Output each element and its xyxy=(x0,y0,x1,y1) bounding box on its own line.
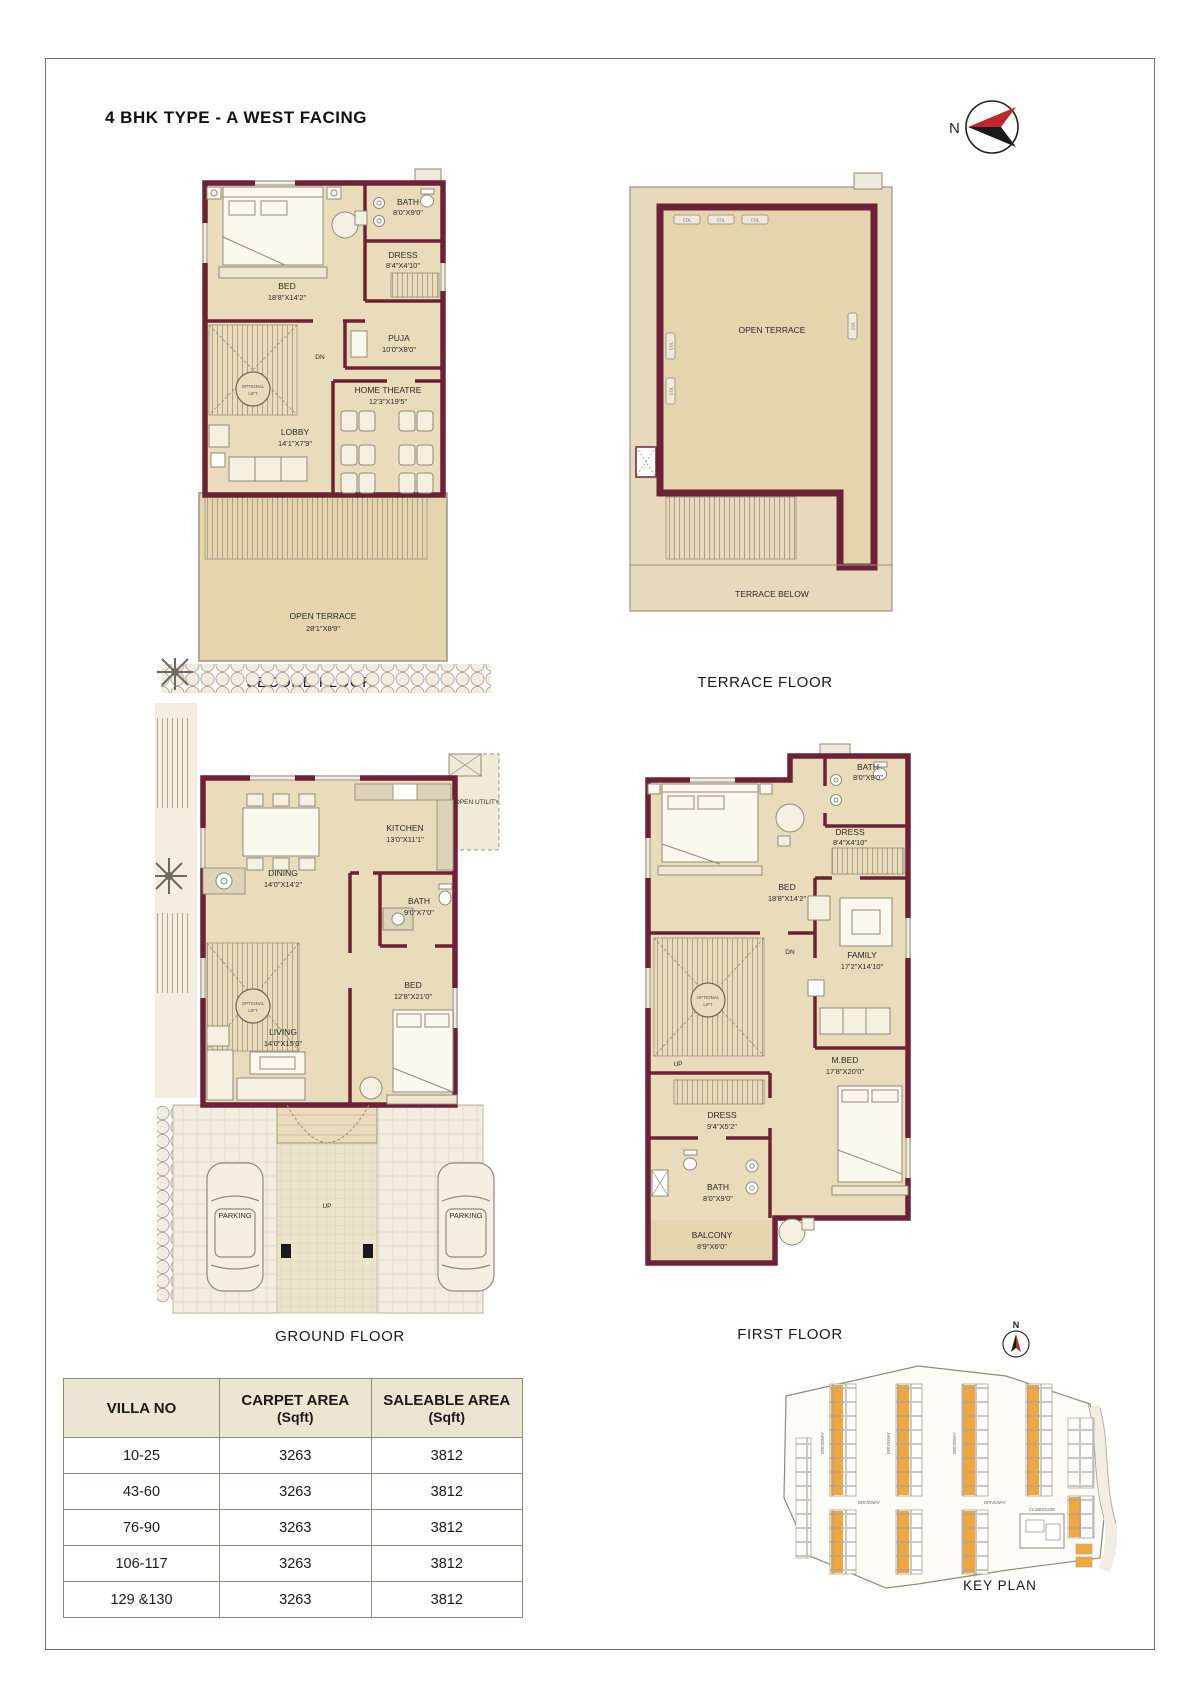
open-terrace-label: OPEN TERRACE xyxy=(739,325,806,335)
lift-label-1: OPTIONAL xyxy=(242,384,265,389)
stair-hatch xyxy=(666,497,796,559)
room-family: FAMILY xyxy=(847,950,877,960)
porch-steps xyxy=(277,1105,377,1143)
second-floor-plan: OPTIONAL LIFT DN BED 18'8"X14'2" BATH 8'… xyxy=(195,163,455,668)
svg-text:8'0"X9'0": 8'0"X9'0" xyxy=(853,773,883,782)
carpet-area-cell: 3263 xyxy=(220,1474,371,1510)
villa-no-cell: 106-117 xyxy=(64,1546,220,1582)
svg-text:N: N xyxy=(1013,1320,1020,1330)
wardrobe-icon xyxy=(832,848,904,874)
svg-text:LIFT: LIFT xyxy=(703,1002,713,1007)
dn-label: DN xyxy=(785,949,795,956)
lot-group xyxy=(830,1384,856,1496)
optional-lift: OPTIONAL LIFT xyxy=(236,372,270,406)
room-open-utility: OPEN UTILITY xyxy=(455,799,500,806)
room-bath-low: BATH xyxy=(707,1182,729,1192)
key-plan-caption: KEY PLAN xyxy=(963,1578,1037,1593)
col-saleable-area: SALEABLE AREA(Sqft) xyxy=(371,1379,522,1438)
dining-set-icon xyxy=(243,794,319,870)
svg-text:14'0"X14'2": 14'0"X14'2" xyxy=(264,880,303,889)
svg-text:18'8"X14'2": 18'8"X14'2" xyxy=(768,894,807,903)
wash-basin-icon xyxy=(203,868,245,894)
svg-text:17'2"X14'10": 17'2"X14'10" xyxy=(841,962,884,971)
key-plan: N xyxy=(768,1318,1118,1613)
svg-text:12'8"X21'0": 12'8"X21'0" xyxy=(394,992,433,1001)
bed-icon xyxy=(387,1010,457,1104)
roof-shaft xyxy=(854,173,882,189)
gate-post xyxy=(281,1244,291,1258)
villa-no-cell: 129 &130 xyxy=(64,1582,220,1618)
room-open-terrace: OPEN TERRACE xyxy=(290,611,357,621)
room-puja: PUJA xyxy=(388,333,410,343)
carpet-area-cell: 3263 xyxy=(220,1510,371,1546)
room-balcony: BALCONY xyxy=(692,1230,733,1240)
table-row: 129 &130 3263 3812 xyxy=(64,1582,523,1618)
page-title: 4 BHK TYPE - A WEST FACING xyxy=(105,108,367,128)
table-row: 43-60 3263 3812 xyxy=(64,1474,523,1510)
puja-shrine-icon xyxy=(351,331,367,357)
lot-group xyxy=(1026,1384,1052,1496)
compass-icon xyxy=(966,101,1018,153)
svg-text:8'4"X4'10": 8'4"X4'10" xyxy=(833,838,867,847)
open-terrace-area xyxy=(199,493,447,661)
lot-group xyxy=(962,1510,988,1574)
room-dress: DRESS xyxy=(388,250,418,260)
svg-text:DRIVEWAY: DRIVEWAY xyxy=(858,1500,880,1505)
svg-text:8'9"X6'0": 8'9"X6'0" xyxy=(697,1242,727,1251)
terrace-below-label: TERRACE BELOW xyxy=(735,589,809,599)
room-kitchen: KITCHEN xyxy=(386,823,423,833)
carpet-area-cell: 3263 xyxy=(220,1582,371,1618)
svg-text:9'0"X7'0": 9'0"X7'0" xyxy=(404,908,434,917)
col-label: COL xyxy=(669,341,674,350)
armchair-icon xyxy=(779,1218,814,1245)
svg-text:13'0"X11'1": 13'0"X11'1" xyxy=(386,835,424,844)
svg-text:LIFT: LIFT xyxy=(248,1008,258,1013)
balcony-floor xyxy=(651,1220,772,1260)
utility-shaft xyxy=(449,754,481,776)
terrace-floor-caption: TERRACE FLOOR xyxy=(615,674,915,691)
room-dress-mid: DRESS xyxy=(707,1110,737,1120)
col-label: COL xyxy=(683,218,692,223)
svg-text:8'0"X9'0": 8'0"X9'0" xyxy=(703,1194,733,1203)
north-compass: N xyxy=(935,92,1030,164)
lot-group xyxy=(830,1510,856,1574)
svg-text:18'8"X14'2": 18'8"X14'2" xyxy=(268,293,307,302)
wardrobe-icon xyxy=(674,1080,764,1104)
highlight-lot xyxy=(1076,1544,1092,1554)
svg-text:DRIVEWAY: DRIVEWAY xyxy=(984,1500,1006,1505)
car-icon xyxy=(438,1163,494,1291)
svg-text:8'4"X4'10": 8'4"X4'10" xyxy=(386,261,420,270)
brochure-page: { "page": { "title": "4 BHK TYPE - A WES… xyxy=(0,0,1200,1697)
svg-text:28'1"X8'9": 28'1"X8'9" xyxy=(306,624,340,633)
hedge-column xyxy=(157,1106,173,1302)
lift-label-2: LIFT xyxy=(248,391,258,396)
bed-icon xyxy=(648,784,772,875)
ground-floor-caption: GROUND FLOOR xyxy=(190,1328,490,1345)
room-lobby: LOBBY xyxy=(281,427,310,437)
svg-text:OPTIONAL: OPTIONAL xyxy=(242,1001,265,1006)
car-icon xyxy=(207,1163,263,1291)
north-label: N xyxy=(949,120,960,137)
garden-hatch xyxy=(155,718,191,808)
gate-post xyxy=(363,1244,373,1258)
highlight-lot xyxy=(1076,1557,1092,1567)
ground-floor-plan: OPTIONAL LIFT UP DINING 14'0"X14'2" KITC… xyxy=(155,658,500,1318)
col-villa-no: VILLA NO xyxy=(64,1379,220,1438)
saleable-area-cell: 3812 xyxy=(371,1510,522,1546)
clubhouse-label: CLUBHOUSE xyxy=(1029,1507,1055,1512)
room-bed: BED xyxy=(778,882,795,892)
room-bath-top: BATH xyxy=(857,762,879,772)
saleable-area-cell: 3812 xyxy=(371,1474,522,1510)
col-label: COL xyxy=(751,218,760,223)
room-dining: DINING xyxy=(268,868,298,878)
parking-label: PARKING xyxy=(218,1211,251,1220)
dn-label: DN xyxy=(315,354,325,361)
room-m-bed: M.BED xyxy=(832,1055,859,1065)
area-table: VILLA NO CARPET AREA(Sqft) SALEABLE AREA… xyxy=(63,1378,523,1618)
room-living: LIVING xyxy=(269,1027,297,1037)
optional-lift: OPTIONAL LIFT xyxy=(236,989,270,1023)
table-row: 76-90 3263 3812 xyxy=(64,1510,523,1546)
wardrobe-icon xyxy=(391,273,439,297)
lot-group xyxy=(896,1510,922,1574)
saleable-area-cell: 3812 xyxy=(371,1546,522,1582)
table-row: 106-117 3263 3812 xyxy=(64,1546,523,1582)
room-dress-top: DRESS xyxy=(835,827,865,837)
svg-text:14'1"X7'9": 14'1"X7'9" xyxy=(278,439,312,448)
bed-icon xyxy=(832,1086,908,1195)
svg-text:12'3"X19'5": 12'3"X19'5" xyxy=(369,397,408,406)
first-floor-plan: OPTIONAL LIFT DN UP BED 18'8"X14'2" BATH… xyxy=(640,718,915,1273)
room-bed: BED xyxy=(404,980,421,990)
lot-group xyxy=(896,1384,922,1496)
col-carpet-area: CARPET AREA(Sqft) xyxy=(220,1379,371,1438)
svg-text:DRIVEWAY: DRIVEWAY xyxy=(886,1432,891,1454)
lot-group xyxy=(962,1384,988,1496)
garden-hatch xyxy=(155,913,191,993)
svg-text:OPTIONAL: OPTIONAL xyxy=(697,995,720,1000)
svg-text:DRIVEWAY: DRIVEWAY xyxy=(820,1432,825,1454)
svg-text:9'4"X5'2": 9'4"X5'2" xyxy=(707,1122,737,1131)
villa-no-cell: 10-25 xyxy=(64,1438,220,1474)
villa-no-cell: 43-60 xyxy=(64,1474,220,1510)
terrace-floor-plan: COL COL COL COL COL COL OPEN TERRACE TER… xyxy=(622,163,907,668)
svg-text:8'0"X9'0": 8'0"X9'0" xyxy=(393,208,423,217)
parking-label: PARKING xyxy=(449,1211,482,1220)
carpet-area-cell: 3263 xyxy=(220,1546,371,1582)
duct-box xyxy=(636,447,656,477)
saleable-area-cell: 3812 xyxy=(371,1438,522,1474)
room-home-theatre: HOME THEATRE xyxy=(355,385,422,395)
villa-no-cell: 76-90 xyxy=(64,1510,220,1546)
col-label: COL xyxy=(717,218,726,223)
room-bed: BED xyxy=(278,281,295,291)
walkway-up-label: UP xyxy=(322,1203,331,1210)
saleable-area-cell: 3812 xyxy=(371,1582,522,1618)
svg-text:14'0"X15'0": 14'0"X15'0" xyxy=(264,1039,303,1048)
svg-text:DRIVEWAY: DRIVEWAY xyxy=(952,1432,957,1454)
col-label: COL xyxy=(669,386,674,395)
room-bath: BATH xyxy=(397,197,419,207)
room-bath: BATH xyxy=(408,896,430,906)
carpet-area-cell: 3263 xyxy=(220,1438,371,1474)
bed-icon xyxy=(207,187,341,278)
table-header-row: VILLA NO CARPET AREA(Sqft) SALEABLE AREA… xyxy=(64,1379,523,1438)
lot-group xyxy=(1068,1496,1094,1538)
svg-text:10'0"X8'0": 10'0"X8'0" xyxy=(382,345,416,354)
optional-lift: OPTIONAL LIFT xyxy=(691,983,725,1017)
armchair-icon xyxy=(360,1077,382,1099)
key-plan-compass-icon: N xyxy=(1003,1320,1029,1357)
col-label: COL xyxy=(851,321,856,330)
table-row: 10-25 3263 3812 xyxy=(64,1438,523,1474)
up-label: UP xyxy=(673,1061,682,1068)
hedge-row xyxy=(161,664,491,693)
svg-text:17'8"X20'0": 17'8"X20'0" xyxy=(826,1067,865,1076)
